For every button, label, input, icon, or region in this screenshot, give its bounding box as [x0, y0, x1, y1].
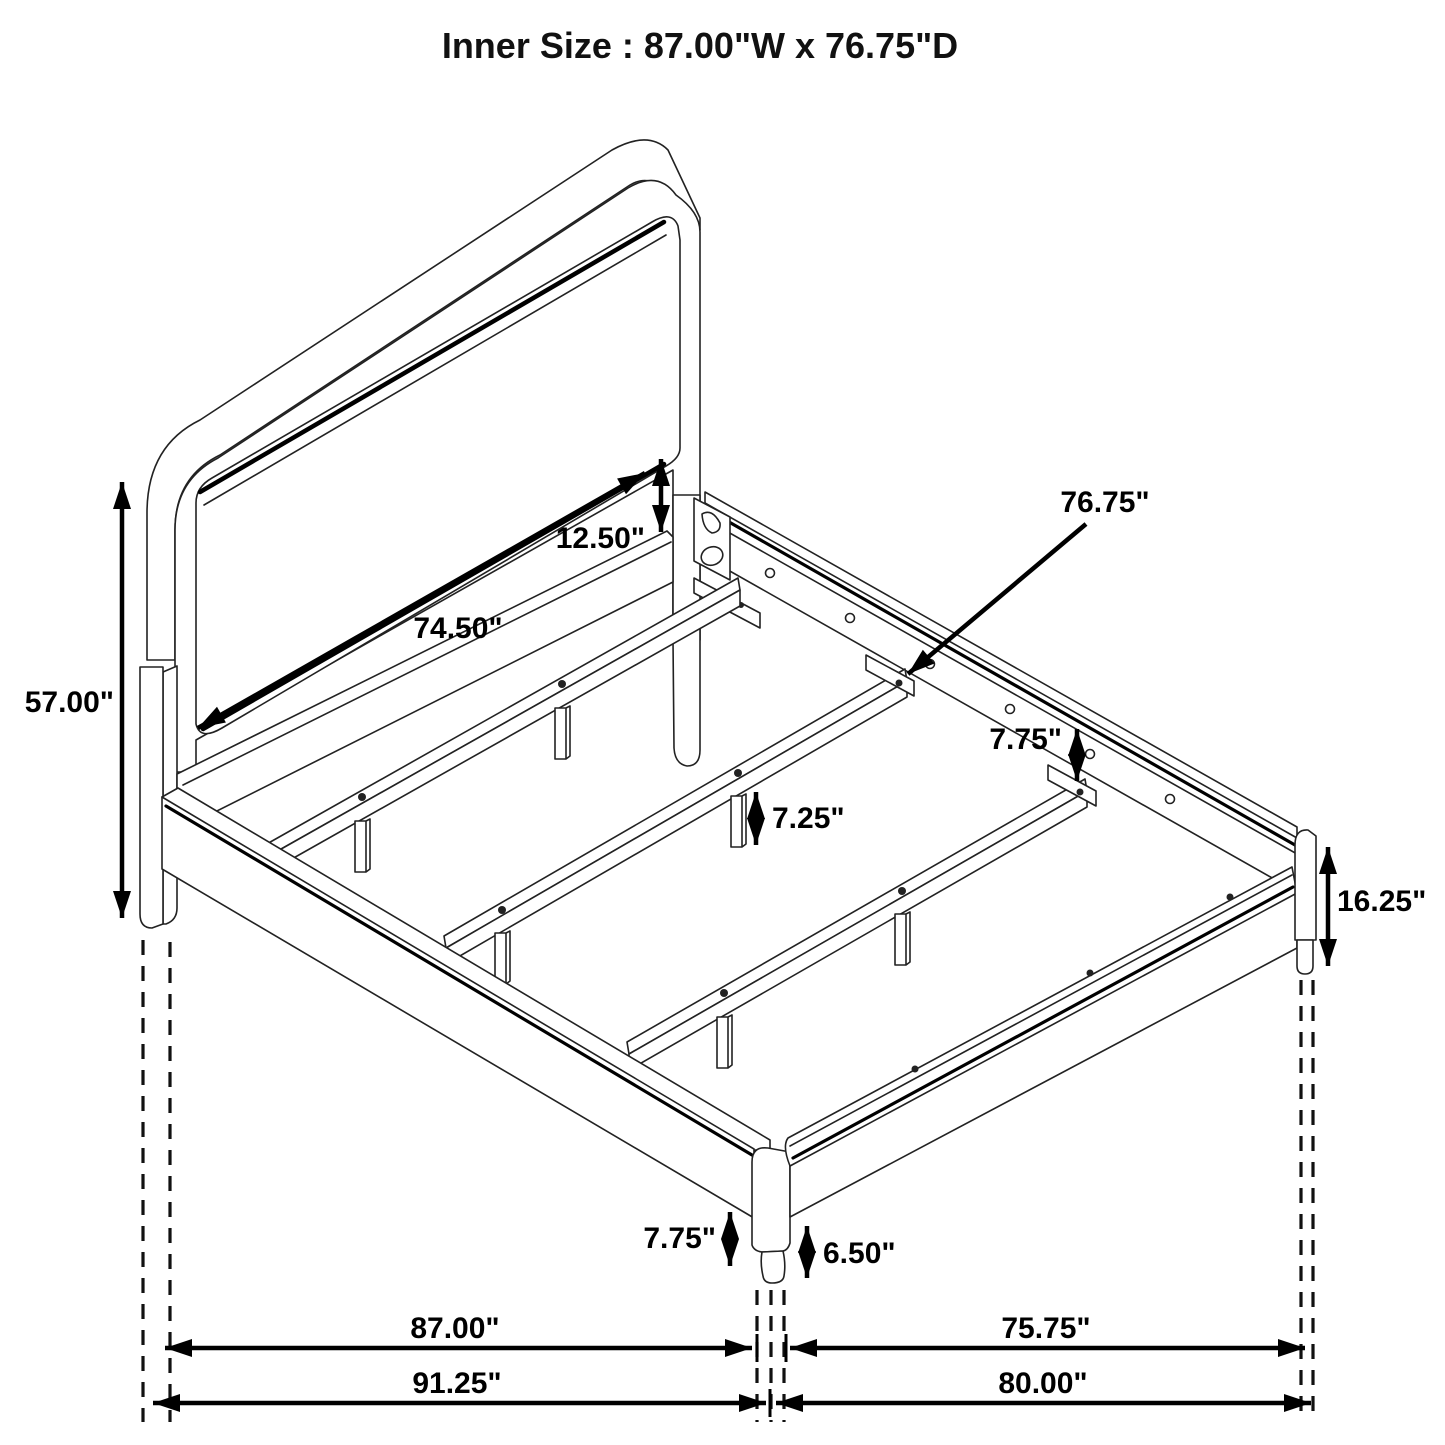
corner-post-foot — [1297, 940, 1313, 974]
dim-label-panel-gap: 12.50" — [556, 522, 645, 555]
dimension-outer-depth: 80.00" — [776, 1367, 1311, 1403]
support-leg — [495, 931, 510, 984]
dim-label-headboard-height: 57.00" — [25, 686, 114, 719]
dim-label-center-leg-height: 7.25" — [772, 802, 845, 835]
dimension-outer-width: 91.25" — [153, 1367, 770, 1417]
dimension-inner-width: 87.00" — [165, 1312, 757, 1362]
dim-label-side-rail-height: 7.75" — [989, 723, 1062, 756]
bed-frame-drawing — [140, 140, 1316, 1283]
dim-label-panel-width: 74.50" — [413, 612, 502, 645]
headboard-left-leg — [140, 667, 163, 928]
dimension-front-leg-height: 6.50" — [807, 1226, 896, 1278]
front-corner-post — [752, 1148, 790, 1283]
support-leg — [895, 912, 910, 965]
dim-label-front-leg-height: 6.50" — [823, 1237, 896, 1270]
left-rail-edge-stripe — [166, 806, 752, 1155]
front-leg-foot — [761, 1251, 785, 1283]
support-leg — [355, 819, 370, 872]
dim-label-outer-depth: 80.00" — [998, 1367, 1087, 1400]
right-rail-edge-stripe — [708, 510, 1295, 845]
dimension-support-rail-length: 76.75" — [908, 486, 1150, 674]
dim-label-outer-width: 91.25" — [412, 1367, 501, 1400]
dimension-footboard-corner-height: 16.25" — [1328, 847, 1426, 966]
support-leg — [717, 1015, 732, 1068]
footboard-corner-post — [1295, 830, 1316, 974]
support-leg — [731, 794, 746, 847]
left-side-rail-board — [162, 788, 770, 1218]
dimension-rail-floor-clearance: 7.75" — [643, 1212, 730, 1266]
left-side-rail — [162, 788, 770, 1218]
bed-frame-diagram: 57.00" 74.50" 12.50" 76.75" 7.75" 7.25" — [0, 0, 1445, 1445]
diagram-title: Inner Size : 87.00"W x 76.75"D — [442, 25, 958, 66]
dim-label-rail-floor-clearance: 7.75" — [643, 1222, 716, 1255]
dim-label-support-rail-length: 76.75" — [1060, 486, 1149, 519]
dimension-center-leg-height: 7.25" — [756, 792, 845, 845]
dim-label-inner-width: 87.00" — [410, 1312, 499, 1345]
dim-label-inner-depth: 75.75" — [1001, 1312, 1090, 1345]
diagram-page: 57.00" 74.50" 12.50" 76.75" 7.75" 7.25" — [0, 0, 1445, 1445]
dimension-headboard-height: 57.00" — [25, 482, 122, 918]
dimension-inner-depth: 75.75" — [786, 1312, 1305, 1362]
support-leg — [555, 706, 570, 759]
dim-label-footboard-corner-height: 16.25" — [1337, 885, 1426, 918]
